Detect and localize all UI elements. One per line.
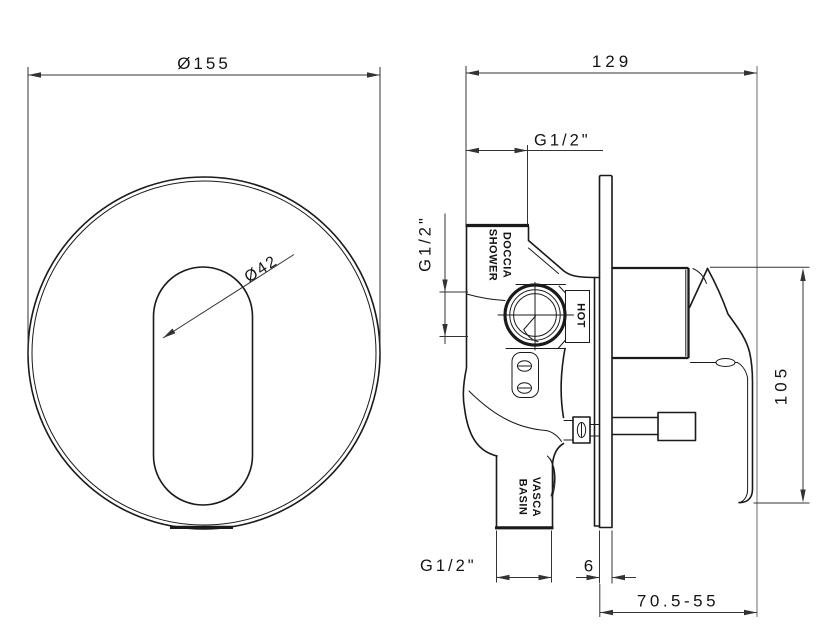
arrowhead bbox=[800, 490, 805, 503]
port-labels: DOCCIA SHOWER HOT VASCA BASIN bbox=[487, 229, 587, 517]
dim-label-height: 105 bbox=[772, 365, 791, 405]
lever-cutout-oval bbox=[154, 267, 253, 505]
dim-plate-diameter-lines bbox=[28, 67, 380, 356]
dim-label-side-connection: G1/2" bbox=[417, 215, 435, 272]
arrowhead bbox=[612, 575, 625, 580]
body-top-slope-inner bbox=[529, 248, 559, 274]
dim-installation-depth: 70.5-55 bbox=[600, 584, 757, 617]
dim-side-connection: G1/2" bbox=[417, 214, 469, 345]
arrowhead bbox=[744, 70, 757, 75]
dim-label-top-connection: G1/2" bbox=[534, 132, 591, 150]
dim-height-lines bbox=[710, 267, 810, 503]
arrowhead bbox=[466, 148, 479, 153]
body-sweep-curve bbox=[469, 391, 562, 442]
body-right-outline bbox=[561, 349, 565, 418]
diverter-knob-body bbox=[658, 413, 696, 441]
body-top-slope bbox=[529, 227, 595, 278]
dim-bottom-connection-lines bbox=[497, 531, 552, 583]
arrowhead bbox=[367, 72, 380, 77]
dim-label-plate-thickness: 6 bbox=[584, 557, 596, 576]
dim-top-connection: G1/2" bbox=[466, 132, 603, 225]
hot-inlet-label: HOT bbox=[575, 303, 587, 328]
dim-label-plate-diameter: Ø155 bbox=[177, 54, 231, 73]
wall-plate-section bbox=[600, 176, 613, 528]
arrowhead bbox=[466, 70, 479, 75]
handle-set-screw-bump bbox=[716, 359, 735, 367]
arrowhead bbox=[515, 148, 528, 153]
diverter-rod bbox=[613, 418, 659, 435]
front-view: Ø155 Ø42 bbox=[28, 54, 380, 529]
handle-assembly bbox=[613, 268, 753, 503]
arrowhead bbox=[163, 329, 175, 339]
arrowhead bbox=[442, 324, 447, 337]
handle-lever-back-edge bbox=[708, 269, 753, 503]
escutcheon-plate-outer-circle bbox=[28, 177, 380, 529]
dim-label-overall-width: 129 bbox=[592, 52, 632, 71]
handle-neck-slope bbox=[690, 269, 708, 308]
hot-inlet-notch bbox=[524, 316, 538, 342]
dim-top-connection-lines bbox=[466, 145, 603, 225]
dim-label-hole-diameter: Ø42 bbox=[242, 252, 282, 286]
basin-port-label-line1: VASCA bbox=[530, 477, 542, 517]
technical-drawing-sheet: Ø155 Ø42 bbox=[0, 0, 837, 642]
plate-top-cap bbox=[600, 176, 613, 178]
arrowhead bbox=[28, 72, 41, 77]
diverter-knob bbox=[613, 413, 696, 441]
dim-label-bottom-connection: G1/2" bbox=[420, 557, 477, 575]
dim-label-installation-depth: 70.5-55 bbox=[637, 592, 719, 611]
mounting-screw-strip bbox=[512, 353, 539, 398]
handle-lever-front-edge bbox=[738, 363, 748, 503]
dim-plate-thickness: 6 bbox=[576, 531, 636, 584]
escutcheon-plate-inner-circle bbox=[32, 181, 376, 525]
arrowhead bbox=[744, 610, 757, 616]
dim-hole-diameter: Ø42 bbox=[163, 252, 294, 338]
arrowhead bbox=[442, 280, 447, 293]
dim-plate-diameter: Ø155 bbox=[28, 54, 380, 356]
side-view: 129 G1/2" G1/2" 105 6 bbox=[417, 52, 810, 617]
arrowhead bbox=[539, 575, 552, 580]
shower-port-label-line1: DOCCIA bbox=[501, 232, 513, 278]
arrowhead bbox=[587, 575, 600, 580]
basin-leaf-outer bbox=[548, 456, 556, 498]
plate-edges bbox=[600, 177, 613, 528]
arrowhead bbox=[600, 610, 613, 616]
handle-cap-top-bottom bbox=[613, 268, 689, 358]
mixer-dimension-drawing: Ø155 Ø42 bbox=[0, 0, 837, 642]
arrowhead bbox=[497, 575, 510, 580]
basin-port-label-line2: BASIN bbox=[517, 479, 529, 516]
dim-bottom-connection: G1/2" bbox=[420, 531, 552, 583]
body-lower-right-curve bbox=[553, 444, 564, 465]
shower-port-label-line2: SHOWER bbox=[487, 229, 499, 282]
dim-height: 105 bbox=[710, 267, 810, 503]
arrowhead bbox=[800, 268, 805, 281]
